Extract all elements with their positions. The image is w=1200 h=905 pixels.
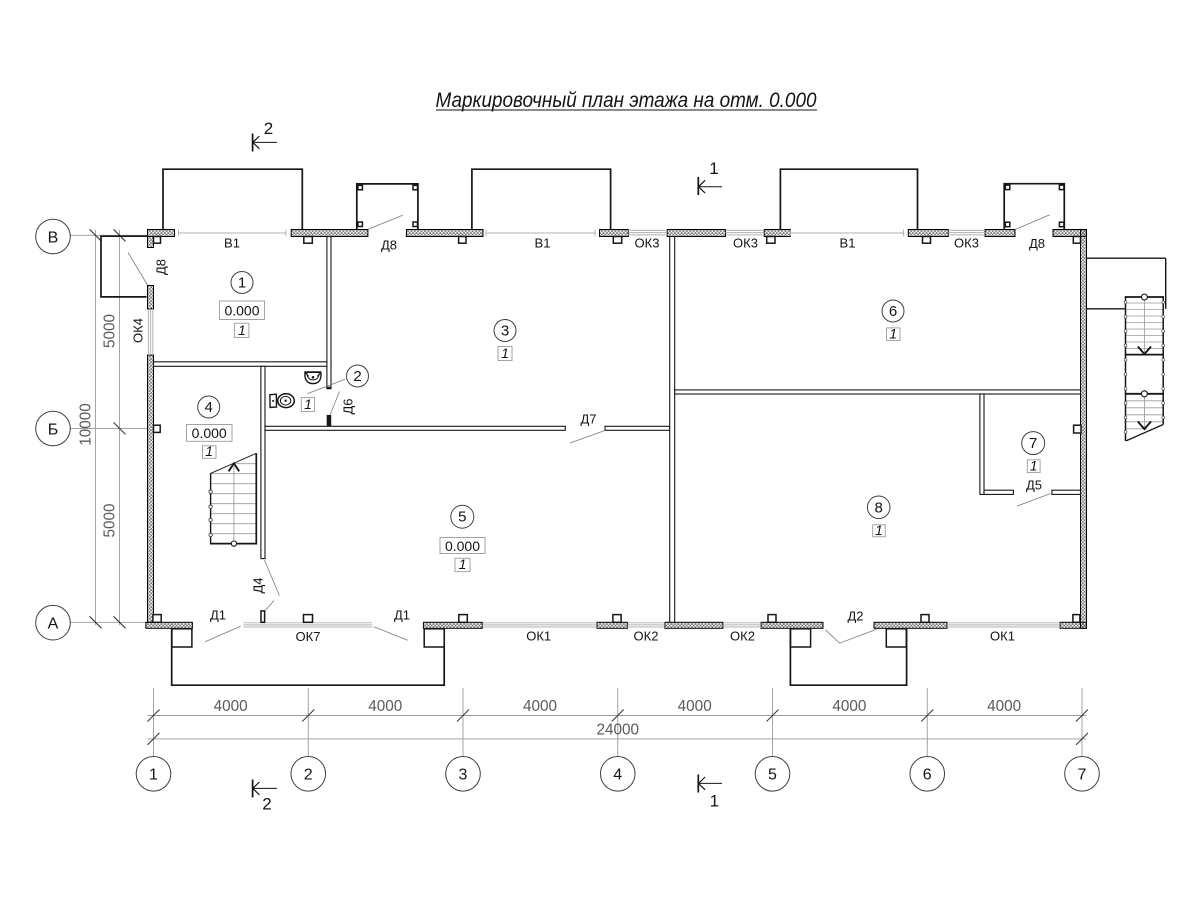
svg-text:А: А: [48, 616, 59, 633]
svg-text:7: 7: [1029, 435, 1037, 452]
svg-text:Д1: Д1: [210, 608, 226, 623]
svg-text:Д4: Д4: [251, 577, 266, 593]
svg-text:2: 2: [264, 119, 273, 138]
svg-text:3: 3: [459, 767, 468, 784]
svg-text:7: 7: [1078, 767, 1087, 784]
svg-text:В1: В1: [535, 236, 551, 251]
svg-text:1: 1: [889, 325, 897, 341]
svg-text:ОК1: ОК1: [990, 629, 1015, 644]
svg-text:4000: 4000: [832, 698, 866, 715]
svg-text:1: 1: [205, 443, 213, 459]
svg-text:ОК2: ОК2: [730, 629, 755, 644]
svg-text:4000: 4000: [214, 698, 248, 715]
svg-text:1: 1: [709, 159, 718, 178]
svg-text:5: 5: [458, 509, 466, 526]
svg-text:1: 1: [149, 767, 158, 784]
svg-text:1: 1: [501, 345, 509, 361]
svg-text:8: 8: [875, 499, 883, 516]
svg-text:4000: 4000: [368, 698, 402, 715]
svg-text:Д6: Д6: [341, 398, 356, 414]
svg-text:4000: 4000: [523, 698, 557, 715]
svg-text:1: 1: [304, 396, 312, 412]
svg-text:Б: Б: [48, 421, 59, 438]
svg-text:Д2: Д2: [847, 609, 863, 624]
svg-text:Д8: Д8: [1029, 236, 1045, 251]
svg-text:0.000: 0.000: [224, 303, 259, 319]
svg-text:1: 1: [238, 275, 246, 292]
svg-text:Д7: Д7: [580, 412, 596, 427]
svg-text:6: 6: [889, 303, 897, 320]
svg-text:В: В: [48, 229, 59, 246]
svg-text:ОК1: ОК1: [526, 629, 551, 644]
svg-text:ОК4: ОК4: [131, 318, 146, 343]
svg-text:4000: 4000: [987, 698, 1021, 715]
svg-text:В1: В1: [840, 236, 856, 251]
svg-text:ОК3: ОК3: [954, 236, 979, 251]
svg-text:Д5: Д5: [1026, 478, 1042, 493]
svg-text:ОК7: ОК7: [296, 629, 321, 644]
svg-text:3: 3: [501, 323, 509, 340]
svg-text:1: 1: [238, 322, 246, 338]
svg-text:1: 1: [1030, 457, 1038, 473]
svg-text:Д1: Д1: [394, 608, 410, 623]
svg-text:Д8: Д8: [154, 259, 169, 275]
svg-text:5000: 5000: [102, 503, 119, 537]
svg-text:0.000: 0.000: [192, 425, 227, 441]
svg-text:0.000: 0.000: [445, 538, 480, 554]
svg-text:10000: 10000: [78, 403, 95, 446]
svg-text:В1: В1: [224, 236, 240, 251]
svg-text:4: 4: [613, 767, 622, 784]
svg-text:4: 4: [205, 399, 213, 416]
svg-text:2: 2: [353, 368, 361, 385]
svg-text:ОК3: ОК3: [733, 236, 758, 251]
svg-text:1: 1: [710, 792, 719, 811]
svg-text:5000: 5000: [102, 314, 119, 348]
svg-text:24000: 24000: [597, 722, 640, 739]
svg-text:6: 6: [923, 767, 932, 784]
svg-text:1: 1: [459, 556, 467, 572]
svg-text:ОК3: ОК3: [635, 236, 660, 251]
svg-text:1: 1: [875, 522, 883, 538]
svg-text:Маркировочный план этажа на от: Маркировочный план этажа на отм. 0.000: [436, 88, 817, 112]
svg-text:2: 2: [304, 767, 313, 784]
svg-text:4000: 4000: [678, 698, 712, 715]
svg-text:ОК2: ОК2: [634, 629, 659, 644]
svg-text:Д8: Д8: [381, 238, 397, 253]
svg-text:5: 5: [768, 767, 777, 784]
svg-text:2: 2: [262, 795, 271, 814]
